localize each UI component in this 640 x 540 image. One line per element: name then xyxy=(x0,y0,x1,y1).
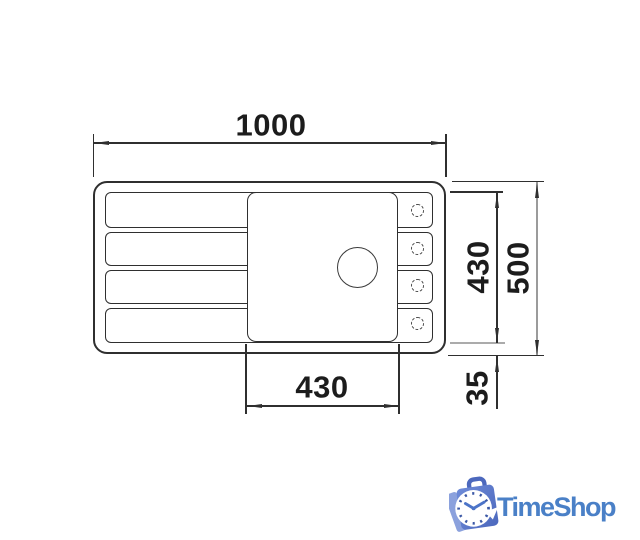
extension-line xyxy=(452,181,544,183)
tap-hole xyxy=(411,317,424,330)
dim-inner-depth-label: 430 xyxy=(463,240,494,293)
arrowhead-left-icon xyxy=(94,141,109,145)
dimension-line-overall-depth xyxy=(536,182,538,355)
dim-overall-width-label: 1000 xyxy=(236,110,307,141)
dimension-line-inner-depth xyxy=(496,192,498,343)
drain-hole xyxy=(337,247,378,288)
sink-technical-drawing: 1000 430 500 35 430 xyxy=(0,0,640,540)
arrowhead-up-icon xyxy=(495,193,499,208)
arrowhead-up-icon xyxy=(495,357,499,372)
dimension-line-width xyxy=(93,142,446,144)
timeshop-logo[interactable]: TimeShop xyxy=(448,474,616,536)
dim-overall-depth-label: 500 xyxy=(503,241,534,294)
stopwatch-shopping-bag-icon xyxy=(449,476,503,534)
arrowhead-left-icon xyxy=(247,404,262,408)
dim-edge-offset-label: 35 xyxy=(462,370,493,405)
tap-hole xyxy=(411,279,424,292)
arrowhead-up-icon xyxy=(535,183,539,198)
arrowhead-right-icon xyxy=(384,404,399,408)
arrowhead-down-icon xyxy=(535,340,539,355)
brand-name: TimeShop xyxy=(497,494,615,521)
tap-hole xyxy=(411,242,424,255)
tap-hole xyxy=(411,204,424,217)
dim-bowl-width-label: 430 xyxy=(295,372,348,403)
arrowhead-right-icon xyxy=(431,141,446,145)
arrowhead-down-icon xyxy=(495,328,499,343)
dimension-line-bowl-width xyxy=(246,405,399,407)
